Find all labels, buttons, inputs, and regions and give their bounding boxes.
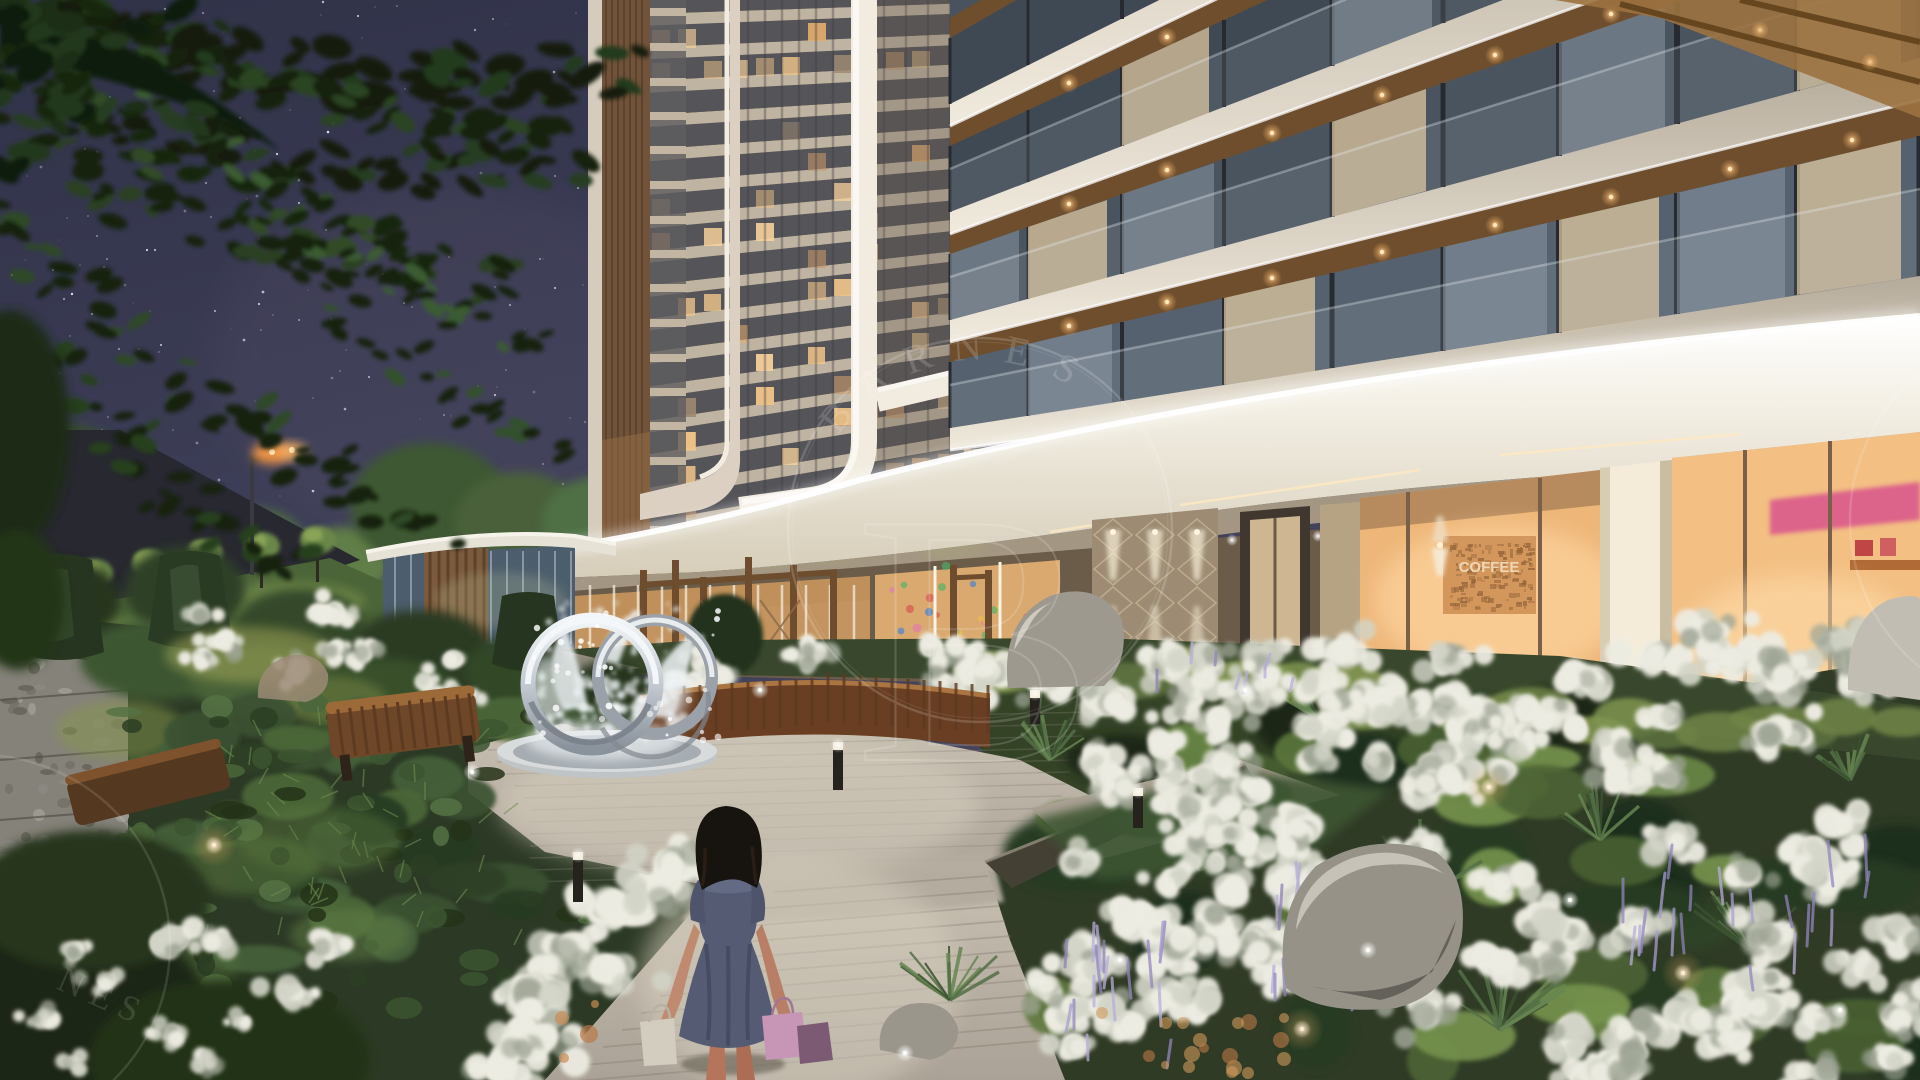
svg-text:B: B [855, 439, 1095, 838]
svg-text:COFFEE: COFFEE [1459, 559, 1520, 576]
svg-text:N: N [951, 323, 983, 370]
